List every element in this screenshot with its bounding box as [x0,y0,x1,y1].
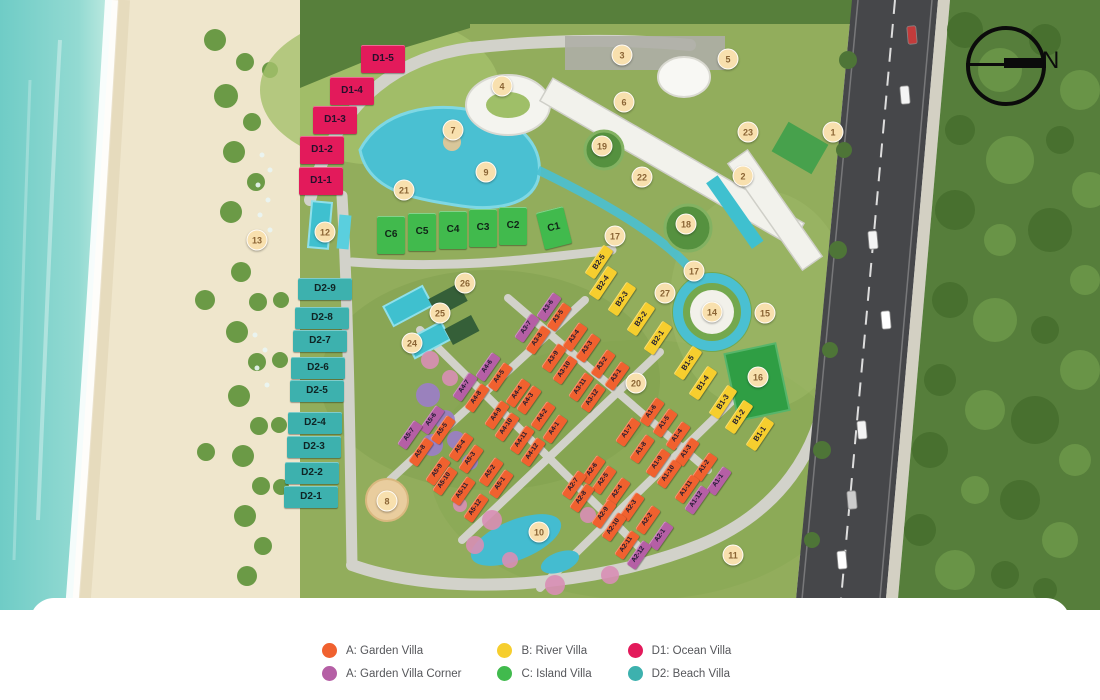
villa-B1-5: B1-5 [674,346,703,381]
villa-D1-5: D1-5 [361,45,405,73]
map-marker-22: 22 [632,167,653,188]
villa-D2-6: D2-6 [291,357,345,379]
legend-label: C: Island Villa [521,668,591,680]
legend-label: D1: Ocean Villa [652,645,732,657]
villa-A5-11: A5-11 [450,476,476,506]
compass-needle [1004,58,1042,68]
legend-color-dot [322,666,337,681]
villa-D2-3: D2-3 [287,436,341,458]
map-marker-8: 8 [377,491,398,512]
map-marker-26: 26 [455,273,476,294]
map-marker-13: 13 [247,230,268,251]
map-marker-12: 12 [315,222,336,243]
villa-D2-8: D2-8 [295,307,349,329]
legend-item: A: Garden Villa [322,642,461,659]
villa-B1-2: B1-2 [725,400,754,435]
villa-A2-1: A2-1 [648,521,674,551]
villa-D2-1: D2-1 [284,486,338,508]
map-marker-19: 19 [592,136,613,157]
map-marker-7: 7 [443,120,464,141]
map-marker-24: 24 [402,333,423,354]
compass-icon [966,26,1046,106]
villa-B1-1: B1-1 [746,417,775,452]
villa-B2-2: B2-2 [627,302,656,337]
villa-D1-4: D1-4 [330,77,374,105]
villa-D2-7: D2-7 [293,330,347,352]
compass-north-label: N [1042,47,1059,75]
map-marker-18: 18 [676,214,697,235]
map-marker-5: 5 [718,49,739,70]
villa-D1-3: D1-3 [313,106,357,134]
villa-D2-5: D2-5 [290,380,344,402]
map-marker-11: 11 [723,545,744,566]
map-marker-17: 17 [684,261,705,282]
map-marker-20: 20 [626,373,647,394]
map-marker-1: 1 [823,122,844,143]
villa-D2-2: D2-2 [285,462,339,484]
villa-C2: C2 [499,207,527,245]
legend-color-dot [628,666,643,681]
map-marker-4: 4 [492,76,513,97]
legend-color-dot [628,643,643,658]
legend-label: A: Garden Villa Corner [346,668,461,680]
villa-B1-4: B1-4 [689,366,718,401]
villa-C4: C4 [439,211,467,249]
map-marker-15: 15 [755,303,776,324]
villa-C5: C5 [408,213,436,251]
map-marker-14: 14 [702,302,723,323]
masterplan-map: D1-5D1-4D1-3D1-2D1-1D2-9D2-8D2-7D2-6D2-5… [0,0,1100,700]
legend-item: D1: Ocean Villa [628,642,732,659]
map-marker-10: 10 [529,522,550,543]
legend-color-dot [497,666,512,681]
legend: A: Garden VillaA: Garden Villa CornerB: … [322,642,731,682]
map-overlay: D1-5D1-4D1-3D1-2D1-1D2-9D2-8D2-7D2-6D2-5… [0,0,1100,610]
map-marker-2: 2 [733,166,754,187]
legend-label: A: Garden Villa [346,645,423,657]
villa-A1-7: A1-7 [615,417,641,447]
villa-A1-1: A1-1 [706,466,732,496]
villa-B2-3: B2-3 [608,282,637,317]
legend-item: A: Garden Villa Corner [322,665,461,682]
villa-D1-2: D1-2 [300,136,344,164]
map-marker-23: 23 [738,122,759,143]
legend-item: C: Island Villa [497,665,591,682]
villa-C1: C1 [536,206,572,250]
legend-color-dot [497,643,512,658]
villa-B2-1: B2-1 [644,321,673,356]
map-marker-17: 17 [605,226,626,247]
map-marker-9: 9 [476,162,497,183]
villa-D2-4: D2-4 [288,412,342,434]
map-marker-6: 6 [614,92,635,113]
villa-D2-9: D2-9 [298,278,352,300]
legend-item: B: River Villa [497,642,591,659]
map-marker-21: 21 [394,180,415,201]
legend-label: B: River Villa [521,645,587,657]
legend-item: D2: Beach Villa [628,665,732,682]
villa-D1-1: D1-1 [299,167,343,195]
map-marker-3: 3 [612,45,633,66]
map-marker-16: 16 [748,367,769,388]
villa-C3: C3 [469,209,497,247]
villa-C6: C6 [377,216,405,254]
map-marker-27: 27 [655,283,676,304]
villa-A1-8: A1-8 [629,434,655,464]
villa-A5-12: A5-12 [463,493,489,523]
map-marker-25: 25 [430,303,451,324]
legend-label: D2: Beach Villa [652,668,730,680]
legend-color-dot [322,643,337,658]
